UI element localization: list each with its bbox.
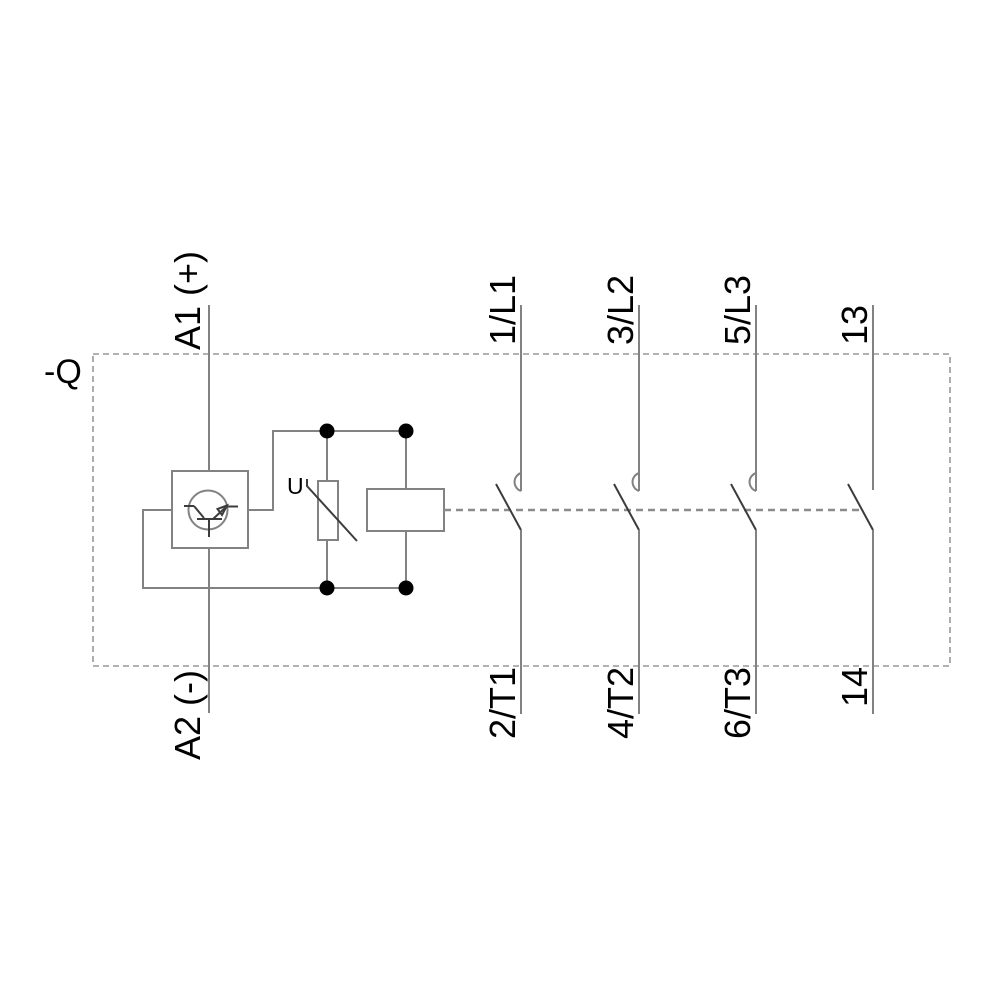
coil-circuit <box>143 305 444 713</box>
junction-dot <box>399 424 414 439</box>
terminal-13-label: 13 <box>834 305 875 345</box>
device-reference-label: -Q <box>44 353 82 391</box>
varistor-voltage-label: U <box>287 473 304 499</box>
aux-contact-blade <box>848 484 873 530</box>
terminal-5l3-label: 5/L3 <box>717 275 758 345</box>
terminal-14-label: 14 <box>834 667 875 707</box>
schematic-page: -Q U A1 (+) A2 (-) 1/L1 2/T1 3/L2 4/T2 5… <box>0 0 1000 1000</box>
junction-dot <box>320 424 335 439</box>
contactor-schematic-canvas: -Q U A1 (+) A2 (-) 1/L1 2/T1 3/L2 4/T2 5… <box>0 0 1000 1000</box>
terminal-2t1-label: 2/T1 <box>482 667 523 739</box>
terminal-6t3-label: 6/T3 <box>717 667 758 739</box>
terminal-a2-label: A2 (-) <box>167 670 208 760</box>
varistor-diagonal-stroke <box>307 479 357 541</box>
terminal-a1-label: A1 (+) <box>167 251 208 350</box>
coil-body <box>367 489 444 531</box>
terminal-3l2-label: 3/L2 <box>600 275 641 345</box>
pole2-contact-blade <box>614 484 639 530</box>
terminal-1l1-label: 1/L1 <box>482 275 523 345</box>
junction-dot <box>320 581 335 596</box>
terminal-4t2-label: 4/T2 <box>600 667 641 739</box>
pole1-contact-blade <box>496 484 521 530</box>
pole3-contact-blade <box>731 484 756 530</box>
junction-dot <box>399 581 414 596</box>
auxiliary-contact <box>848 305 873 714</box>
